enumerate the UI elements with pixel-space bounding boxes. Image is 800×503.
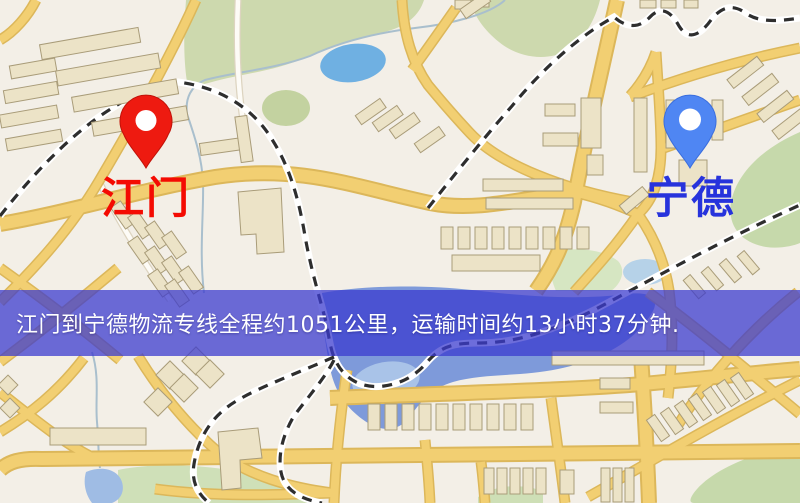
map-graphic: 江门 宁德 xyxy=(0,0,800,503)
origin-pin-hole xyxy=(136,110,157,131)
destination-label: 宁德 xyxy=(646,174,736,224)
route-summary-banner: 江门到宁德物流专线全程约1051公里，运输时间约13小时37分钟. xyxy=(0,290,800,356)
destination-pin-hole xyxy=(679,109,701,131)
map-canvas[interactable]: 江门 宁德 江门到宁德物流专线全程约1051公里，运输时间约13小时37分钟. xyxy=(0,0,800,503)
origin-label: 江门 xyxy=(101,174,191,224)
route-summary-text: 江门到宁德物流专线全程约1051公里，运输时间约13小时37分钟. xyxy=(16,307,679,339)
